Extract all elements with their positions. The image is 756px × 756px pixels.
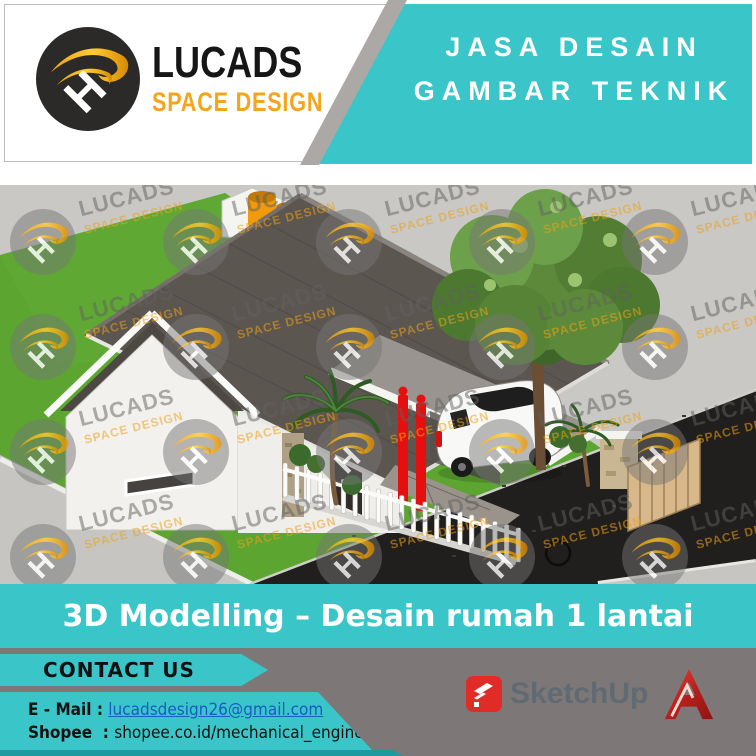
shopee-row: Shopee : shopee.co.id/mechanical_enginee… <box>28 722 347 745</box>
caption-banner: 3D Modelling – Desain rumah 1 lantai <box>0 584 756 648</box>
shopee-value: shopee.co.id/mechanical_engineering <box>114 723 403 743</box>
email-row: E - Mail : lucadsdesign26@gmail.com <box>28 699 347 722</box>
sketchup-logo: SketchUp <box>466 676 648 712</box>
header: H LUCADS SPACE DESIGN JASA DESAIN GAMBAR… <box>0 0 756 185</box>
contact-box-shadow <box>0 750 404 756</box>
footer: CONTACT US E - Mail : lucadsdesign26@gma… <box>0 648 756 756</box>
contact-ribbon: CONTACT US <box>0 654 268 686</box>
brand-subtitle: SPACE DESIGN <box>152 87 323 118</box>
shopee-label: Shopee : <box>28 723 114 743</box>
contact-box: E - Mail : lucadsdesign26@gmail.com Shop… <box>0 692 382 750</box>
sketchup-icon <box>466 676 502 712</box>
email-link[interactable]: lucadsdesign26@gmail.com <box>108 700 323 720</box>
service-banner-line2: GAMBAR TEKNIK <box>400 78 748 105</box>
email-label: E - Mail : <box>28 700 108 720</box>
flyer-page: H LUCADS SPACE DESIGN JASA DESAIN GAMBAR… <box>0 0 756 756</box>
contact-heading: CONTACT US <box>43 658 225 682</box>
service-banner-line1: JASA DESAIN <box>400 34 748 61</box>
sketchup-label: SketchUp <box>510 677 648 711</box>
brand: H LUCADS SPACE DESIGN <box>36 27 366 131</box>
caption-text: 3D Modelling – Desain rumah 1 lantai <box>62 599 693 634</box>
brand-logo-icon: H <box>36 27 140 131</box>
house-render-graphic <box>0 185 756 584</box>
brand-text: LUCADS SPACE DESIGN <box>152 41 366 118</box>
service-banner: JASA DESAIN GAMBAR TEKNIK <box>400 34 748 122</box>
house-render-image: H LUCADSSPACE DESIGN H LUCADSSPACE DESIG… <box>0 185 756 584</box>
autocad-icon <box>660 666 718 724</box>
autocad-logo <box>660 666 718 729</box>
brand-name: LUCADS <box>152 41 328 85</box>
